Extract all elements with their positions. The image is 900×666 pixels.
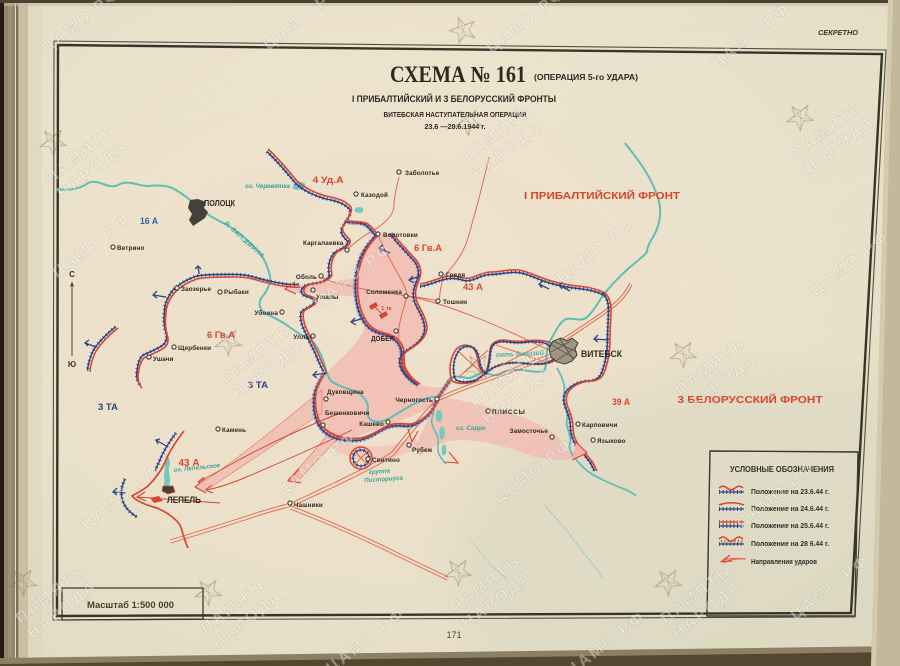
svg-text:Черногость: Черногость	[395, 397, 433, 404]
svg-text:Каргалаевка: Каргалаевка	[303, 240, 344, 247]
svg-text:16 А: 16 А	[140, 216, 158, 226]
svg-text:ЛЕПЕЛЬ: ЛЕПЕЛЬ	[167, 495, 201, 506]
svg-text:Кашево: Кашево	[359, 421, 384, 428]
svg-text:Рыбаки: Рыбаки	[224, 288, 249, 296]
svg-text:Карповичи: Карповичи	[582, 422, 618, 429]
svg-text:Ю: Ю	[68, 360, 76, 369]
svg-text:ДОБЕЯ: ДОБЕЯ	[371, 334, 394, 343]
svg-text:I ПРИБАЛТИЙСКИЙ И 3 БЕЛОРУССКИ: I ПРИБАЛТИЙСКИЙ И 3 БЕЛОРУССКИЙ ФРОНТЫ	[352, 93, 556, 104]
svg-text:Дуковщина: Дуковщина	[327, 389, 364, 396]
svg-text:Рубеж: Рубеж	[412, 446, 433, 454]
svg-text:Убоина: Убоина	[254, 309, 278, 317]
svg-text:Заозерье: Заозерье	[181, 286, 212, 293]
svg-text:43 А: 43 А	[463, 282, 483, 293]
svg-text:Свитино: Свитино	[372, 457, 400, 464]
svg-text:Чашники: Чашники	[294, 502, 323, 509]
svg-text:4 Уд.А: 4 Уд.А	[313, 175, 344, 186]
svg-text:171: 171	[446, 630, 461, 640]
svg-text:Грядя: Грядя	[446, 272, 465, 279]
svg-text:Направления ударов: Направления ударов	[751, 557, 817, 566]
svg-text:ВИТЕБСК: ВИТЕБСК	[581, 349, 622, 360]
svg-text:Оболь: Оболь	[296, 273, 317, 281]
svg-text:Языково: Языково	[597, 438, 626, 445]
svg-text:Волотовки: Волотовки	[383, 232, 418, 239]
svg-text:Тошник: Тошник	[443, 299, 468, 306]
svg-text:Ветрино: Ветрино	[117, 245, 144, 252]
svg-text:Заболотье: Заболотье	[405, 169, 440, 177]
svg-text:УСЛОВНЫЕ ОБОЗНАЧЕНИЯ: УСЛОВНЫЕ ОБОЗНАЧЕНИЯ	[730, 465, 834, 474]
svg-text:Замосточье: Замосточье	[509, 428, 548, 435]
svg-text:39 А: 39 А	[612, 397, 630, 407]
svg-text:Масштаб 1:500 000: Масштаб 1:500 000	[87, 600, 174, 610]
svg-text:ПОЛОЦК: ПОЛОЦК	[204, 198, 236, 208]
svg-text:(ОПЕРАЦИЯ 5-го УДАРА): (ОПЕРАЦИЯ 5-го УДАРА)	[534, 72, 638, 82]
svg-text:Ушачи: Ушачи	[153, 356, 174, 363]
svg-text:СЕКРЕТНО: СЕКРЕТНО	[818, 28, 858, 37]
svg-text:3 ТА: 3 ТА	[98, 402, 118, 413]
svg-text:Соломенка: Соломенка	[366, 289, 402, 296]
svg-text:СХЕМА № 161: СХЕМА № 161	[390, 62, 526, 87]
svg-text:Бешенковичи: Бешенковичи	[325, 410, 369, 417]
svg-text:Щербенки: Щербенки	[178, 344, 211, 352]
svg-text:1 тк: 1 тк	[381, 306, 392, 312]
svg-text:Казодой: Казодой	[361, 191, 388, 199]
svg-text:23.6 —28.6.1944 г.: 23.6 —28.6.1944 г.	[425, 124, 486, 131]
svg-text:6 Гв.А: 6 Гв.А	[414, 243, 442, 254]
svg-text:оз. Сарро: оз. Сарро	[456, 425, 486, 432]
svg-text:Положение на 25.6.44 г.: Положение на 25.6.44 г.	[751, 521, 829, 530]
svg-text:оз. Черевятка: оз. Черевятка	[245, 183, 290, 190]
svg-text:Камень: Камень	[222, 427, 246, 434]
svg-text:Положение на 28 6.44 г.: Положение на 28 6.44 г.	[751, 539, 829, 548]
svg-text:I ПРИБАЛТИЙСКИЙ ФРОНТ: I ПРИБАЛТИЙСКИЙ ФРОНТ	[524, 189, 681, 202]
